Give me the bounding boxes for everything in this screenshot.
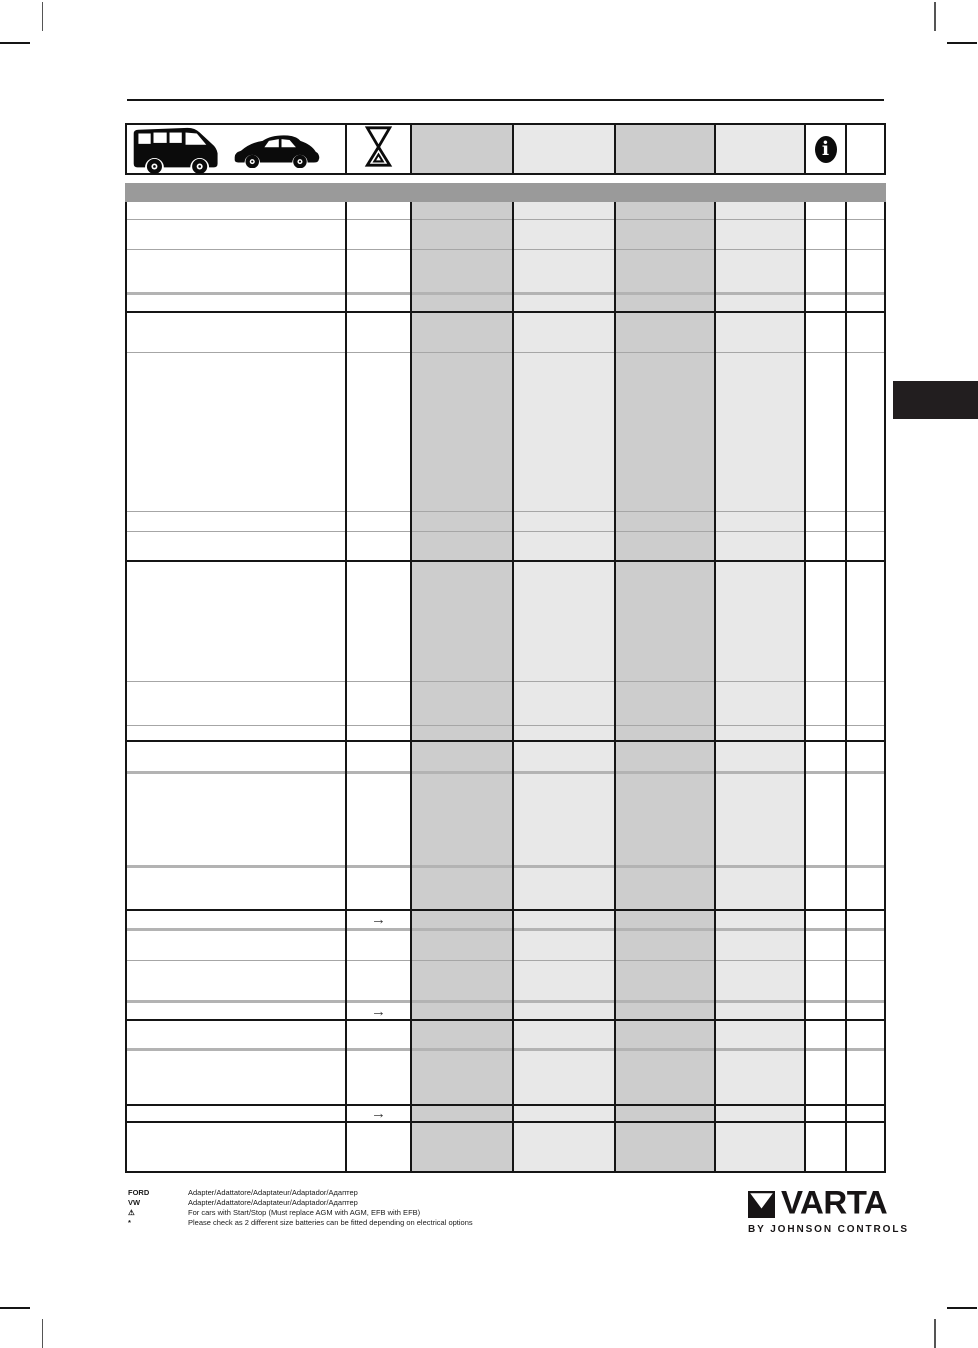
table-cell — [615, 532, 715, 560]
table-cell — [127, 220, 346, 249]
table-cell — [513, 532, 615, 560]
table-cell — [615, 931, 715, 960]
table-row: → — [127, 911, 884, 931]
table-row — [127, 961, 884, 1003]
table-row — [127, 202, 884, 220]
table-cell — [513, 931, 615, 960]
info-cell: i — [805, 125, 846, 173]
crop-mark — [947, 1307, 977, 1309]
table-cell — [513, 774, 615, 865]
table-cell — [127, 742, 346, 771]
table-cell — [805, 1051, 846, 1104]
table-cell — [805, 353, 846, 511]
table-cell — [615, 353, 715, 511]
table-cell — [615, 726, 715, 740]
crop-mark — [947, 42, 977, 44]
table-row — [127, 313, 884, 353]
catalog-page: i →→→ FORDAdapter/Adattatore/Adaptateur/… — [0, 0, 978, 1348]
table-cell — [846, 1003, 884, 1019]
table-cell — [715, 931, 805, 960]
table-cell — [805, 931, 846, 960]
table-cell — [715, 742, 805, 771]
table-cell — [346, 313, 411, 352]
table-cell — [846, 313, 884, 352]
arrow-indicator: → — [346, 911, 411, 928]
table-cell — [615, 202, 715, 219]
table-cell — [715, 682, 805, 725]
table-cell — [615, 1106, 715, 1121]
table-cell — [513, 512, 615, 531]
table-cell — [715, 250, 805, 292]
table-cell — [715, 512, 805, 531]
table-row — [127, 742, 884, 774]
varta-mark-icon — [748, 1191, 775, 1223]
arrow-indicator: → — [346, 1003, 411, 1019]
table-cell — [127, 931, 346, 960]
table-cell — [346, 961, 411, 1000]
table-cell — [615, 1021, 715, 1048]
table-cell — [411, 961, 513, 1000]
table-cell — [411, 250, 513, 292]
table-cell — [715, 774, 805, 865]
table-cell — [127, 726, 346, 740]
table-cell — [127, 562, 346, 681]
table-cell — [346, 532, 411, 560]
table-row: → — [127, 1106, 884, 1123]
table-cell — [127, 911, 346, 928]
legend: FORDAdapter/Adattatore/Adaptateur/Adapta… — [128, 1188, 473, 1228]
legend-symbol: FORD — [128, 1188, 188, 1198]
table-cell — [715, 911, 805, 928]
table-cell — [615, 911, 715, 928]
table-cell — [127, 1021, 346, 1048]
table-cell — [513, 1021, 615, 1048]
table-cell — [411, 1003, 513, 1019]
table-cell — [411, 202, 513, 219]
table-cell — [715, 562, 805, 681]
table-cell — [846, 1021, 884, 1048]
table-cell — [715, 1051, 805, 1104]
table-cell — [127, 295, 346, 311]
table-cell — [411, 931, 513, 960]
legend-symbol: ⚠ — [128, 1208, 188, 1218]
table-row — [127, 512, 884, 532]
crop-mark — [934, 1319, 936, 1348]
table-cell — [615, 742, 715, 771]
table-cell — [805, 682, 846, 725]
table-cell — [615, 868, 715, 909]
legend-item: ⚠For cars with Start/Stop (Must replace … — [128, 1208, 473, 1218]
table-cell — [346, 868, 411, 909]
table-cell — [513, 682, 615, 725]
table-cell — [846, 532, 884, 560]
table-row — [127, 1021, 884, 1051]
column-divider — [345, 125, 347, 173]
table-cell — [615, 562, 715, 681]
table-cell — [513, 742, 615, 771]
table-cell — [513, 202, 615, 219]
car-icon — [232, 130, 322, 168]
arrow-indicator: → — [346, 1106, 411, 1121]
table-cell — [411, 774, 513, 865]
table-cell — [846, 742, 884, 771]
table-cell — [411, 532, 513, 560]
table-cell — [715, 1123, 805, 1171]
column-divider — [614, 125, 616, 173]
table-cell — [346, 931, 411, 960]
crop-mark — [0, 1307, 30, 1309]
battery-hourglass-icon — [364, 125, 393, 173]
table-cell — [513, 313, 615, 352]
legend-text: Please check as 2 different size batteri… — [188, 1218, 473, 1228]
table-cell — [805, 202, 846, 219]
table-cell — [127, 682, 346, 725]
table-cell — [615, 313, 715, 352]
table-cell — [846, 682, 884, 725]
legend-symbol: * — [128, 1218, 188, 1228]
table-cell — [805, 961, 846, 1000]
crop-mark — [42, 1319, 44, 1348]
table-cell — [715, 220, 805, 249]
table-cell — [513, 353, 615, 511]
table-cell — [615, 512, 715, 531]
legend-text: For cars with Start/Stop (Must replace A… — [188, 1208, 420, 1218]
table-cell — [513, 911, 615, 928]
table-cell — [846, 1051, 884, 1104]
table-cell — [805, 295, 846, 311]
table-cell — [513, 726, 615, 740]
table-row — [127, 682, 884, 726]
van-icon — [130, 125, 226, 174]
table-cell — [715, 726, 805, 740]
header-shaded-cell — [513, 125, 615, 173]
table-cell — [411, 1051, 513, 1104]
table-cell — [715, 961, 805, 1000]
table-cell — [127, 961, 346, 1000]
table-cell — [127, 313, 346, 352]
table-cell — [805, 512, 846, 531]
table-row — [127, 774, 884, 868]
table-cell — [346, 220, 411, 249]
table-row — [127, 1051, 884, 1106]
legend-item: *Please check as 2 different size batter… — [128, 1218, 473, 1228]
table-cell — [846, 353, 884, 511]
table-cell — [846, 911, 884, 928]
table-cell — [615, 295, 715, 311]
table-cell — [715, 532, 805, 560]
table-cell — [127, 353, 346, 511]
table-cell — [346, 202, 411, 219]
table-cell — [411, 726, 513, 740]
table-cell — [513, 295, 615, 311]
table-cell — [846, 774, 884, 865]
varta-wordmark: VARTA — [781, 1184, 887, 1221]
table-cell — [805, 313, 846, 352]
table-cell — [513, 1106, 615, 1121]
table-cell — [846, 512, 884, 531]
table-cell — [846, 562, 884, 681]
table-cell — [127, 250, 346, 292]
table-cell — [411, 295, 513, 311]
crop-mark — [42, 2, 44, 31]
table-cell — [346, 726, 411, 740]
section-title-band — [125, 183, 886, 202]
table-cell — [513, 250, 615, 292]
column-divider — [614, 202, 616, 1171]
table-cell — [615, 250, 715, 292]
table-cell — [615, 961, 715, 1000]
header-shaded-cell — [715, 125, 805, 173]
table-cell — [846, 202, 884, 219]
table-cell — [715, 1021, 805, 1048]
legend-symbol: VW — [128, 1198, 188, 1208]
table-cell — [346, 562, 411, 681]
table-cell — [805, 1003, 846, 1019]
crop-mark — [934, 2, 936, 31]
battery-table-body: →→→ — [125, 202, 886, 1173]
table-cell — [127, 1051, 346, 1104]
header-shaded-cell — [615, 125, 715, 173]
table-cell — [715, 295, 805, 311]
table-cell — [805, 532, 846, 560]
table-row — [127, 250, 884, 295]
table-cell — [805, 562, 846, 681]
table-cell — [513, 562, 615, 681]
column-divider — [804, 125, 806, 173]
table-cell — [346, 1123, 411, 1171]
table-row — [127, 726, 884, 742]
legend-item: VWAdapter/Adattatore/Adaptateur/Adaptado… — [128, 1198, 473, 1208]
table-row — [127, 295, 884, 313]
varta-logo: VARTA BY JOHNSON CONTROLS — [745, 1186, 895, 1241]
table-cell — [615, 1003, 715, 1019]
column-divider — [714, 202, 716, 1171]
table-cell — [346, 295, 411, 311]
table-cell — [805, 868, 846, 909]
table-cell — [615, 1051, 715, 1104]
legend-text: Adapter/Adattatore/Adaptateur/Adaptador/… — [188, 1198, 358, 1208]
table-cell — [127, 1106, 346, 1121]
table-cell — [346, 774, 411, 865]
column-divider — [512, 125, 514, 173]
table-cell — [346, 742, 411, 771]
table-cell — [127, 774, 346, 865]
table-row — [127, 532, 884, 562]
table-cell — [805, 911, 846, 928]
table-cell — [411, 682, 513, 725]
table-cell — [846, 250, 884, 292]
table-cell — [346, 250, 411, 292]
table-cell — [846, 1106, 884, 1121]
table-cell — [846, 220, 884, 249]
table-cell — [615, 1123, 715, 1171]
table-cell — [715, 1003, 805, 1019]
table-cell — [346, 682, 411, 725]
table-cell — [411, 1106, 513, 1121]
table-cell — [411, 353, 513, 511]
table-cell — [513, 1051, 615, 1104]
table-cell — [411, 1123, 513, 1171]
table-cell — [513, 961, 615, 1000]
crop-mark — [0, 42, 30, 44]
table-cell — [846, 295, 884, 311]
table-cell — [715, 353, 805, 511]
table-cell — [846, 1123, 884, 1171]
table-cell — [127, 512, 346, 531]
table-cell — [805, 726, 846, 740]
legend-text: Adapter/Adattatore/Adaptateur/Adaptador/… — [188, 1188, 358, 1198]
table-cell — [846, 961, 884, 1000]
table-cell — [127, 868, 346, 909]
hold-time-cell — [346, 125, 411, 173]
vehicle-types-cell — [127, 125, 346, 173]
table-row — [127, 562, 884, 682]
table-cell — [346, 512, 411, 531]
table-cell — [513, 1003, 615, 1019]
table-cell — [513, 220, 615, 249]
table-cell — [615, 220, 715, 249]
table-cell — [411, 220, 513, 249]
table-cell — [127, 1003, 346, 1019]
column-divider — [512, 202, 514, 1171]
table-cell — [411, 911, 513, 928]
table-row — [127, 868, 884, 911]
table-cell — [411, 742, 513, 771]
table-cell — [346, 1051, 411, 1104]
table-cell — [805, 1106, 846, 1121]
table-cell — [411, 1021, 513, 1048]
table-cell — [513, 868, 615, 909]
column-divider — [410, 202, 412, 1171]
table-cell — [805, 220, 846, 249]
table-cell — [346, 1021, 411, 1048]
table-cell — [346, 353, 411, 511]
table-row — [127, 931, 884, 961]
table-cell — [805, 1021, 846, 1048]
table-cell — [805, 1123, 846, 1171]
table-cell — [715, 202, 805, 219]
table-cell — [805, 250, 846, 292]
legend-item: FORDAdapter/Adattatore/Adaptateur/Adapta… — [128, 1188, 473, 1198]
table-cell — [805, 774, 846, 865]
section-tab — [893, 381, 978, 419]
table-cell — [513, 1123, 615, 1171]
table-cell — [805, 742, 846, 771]
column-divider — [845, 202, 847, 1171]
table-cell — [411, 313, 513, 352]
table-row — [127, 220, 884, 250]
table-row — [127, 353, 884, 512]
table-cell — [127, 202, 346, 219]
table-cell — [411, 562, 513, 681]
table-cell — [715, 868, 805, 909]
table-cell — [846, 931, 884, 960]
table-row: → — [127, 1003, 884, 1021]
table-cell — [411, 868, 513, 909]
table-cell — [615, 774, 715, 865]
info-icon: i — [815, 136, 837, 163]
table-cell — [615, 682, 715, 725]
table-cell — [846, 726, 884, 740]
column-divider — [345, 202, 347, 1171]
empty-header-cell — [846, 125, 884, 173]
column-divider — [410, 125, 412, 173]
table-cell — [127, 1123, 346, 1171]
column-divider — [804, 202, 806, 1171]
table-row — [127, 1123, 884, 1171]
column-divider — [845, 125, 847, 173]
table-cell — [715, 1106, 805, 1121]
table-header-row: i — [125, 123, 886, 175]
top-rule — [127, 99, 884, 101]
table-cell — [846, 868, 884, 909]
varta-tagline: BY JOHNSON CONTROLS — [748, 1224, 909, 1235]
column-divider — [714, 125, 716, 173]
header-shaded-cell — [411, 125, 513, 173]
table-cell — [715, 313, 805, 352]
table-cell — [127, 532, 346, 560]
table-cell — [411, 512, 513, 531]
